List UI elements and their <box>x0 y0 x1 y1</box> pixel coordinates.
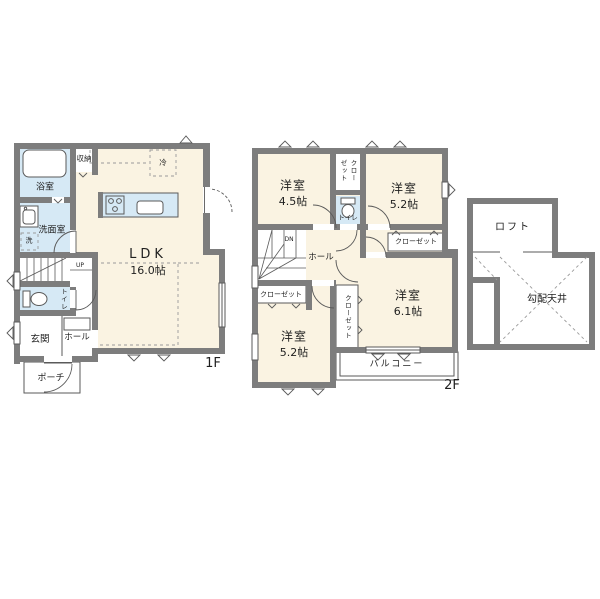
kitchen-service-door-arc <box>210 189 232 212</box>
bathroom-label: 浴室 <box>36 183 54 192</box>
room-b-label: 洋室 <box>391 183 417 196</box>
washbasin-icon <box>20 206 38 227</box>
floor1-label: 1F <box>205 357 221 371</box>
floor-plan: 浴室 収納 洗面室 洗 冷 LDK 16.0帖 UP トイレ 玄関 ホール ポー… <box>0 0 600 599</box>
room-a-label: 洋室 <box>280 180 306 193</box>
fridge-label: 冷 <box>159 159 167 167</box>
room-d-label: 洋室 <box>281 331 307 344</box>
porch-label: ポーチ <box>37 374 64 383</box>
room-b-size: 5.2帖 <box>390 199 419 211</box>
window-marker <box>180 136 192 143</box>
sink-icon <box>137 201 163 214</box>
toilet-icon-1f <box>23 291 47 307</box>
sloped-ceiling-label: 勾配天井 <box>527 295 567 306</box>
stairs-down-label: DN <box>284 237 293 243</box>
stairs-up-label: UP <box>76 263 84 269</box>
closet-left-label: クローゼット <box>260 291 302 298</box>
closet-top-label: クローゼット <box>338 158 358 185</box>
laundry-label: 洗 <box>26 237 33 244</box>
toilet-label-2f: トイレ <box>338 215 358 222</box>
ldk-size-label: 16.0帖 <box>130 265 166 277</box>
closet-right-label: クローゼット <box>395 238 437 245</box>
shoe-cabinet <box>64 318 90 330</box>
storage-label: 収納 <box>77 155 92 163</box>
hall-label-1f: ホール <box>64 334 90 343</box>
toilet-label-1f: トイレ <box>60 288 67 311</box>
floor2-label: 2F <box>444 379 460 393</box>
room-a-size: 4.5帖 <box>279 196 308 208</box>
room-c-size: 6.1帖 <box>394 306 423 318</box>
ldk-label: LDK <box>129 248 167 262</box>
balcony-label: バルコニー <box>370 360 425 369</box>
entrance-label: 玄関 <box>30 335 49 345</box>
floor-plan-drawing <box>0 0 600 599</box>
bathtub-icon <box>23 150 66 177</box>
room-d-size: 5.2帖 <box>280 347 309 359</box>
room-c-label: 洋室 <box>395 290 421 303</box>
loft-walls <box>467 198 595 350</box>
hall-label-2f: ホール <box>308 254 334 263</box>
closet-center-label: クローゼット <box>344 295 351 340</box>
washroom-label: 洗面室 <box>38 226 65 235</box>
loft-label: ロフト <box>495 223 531 234</box>
